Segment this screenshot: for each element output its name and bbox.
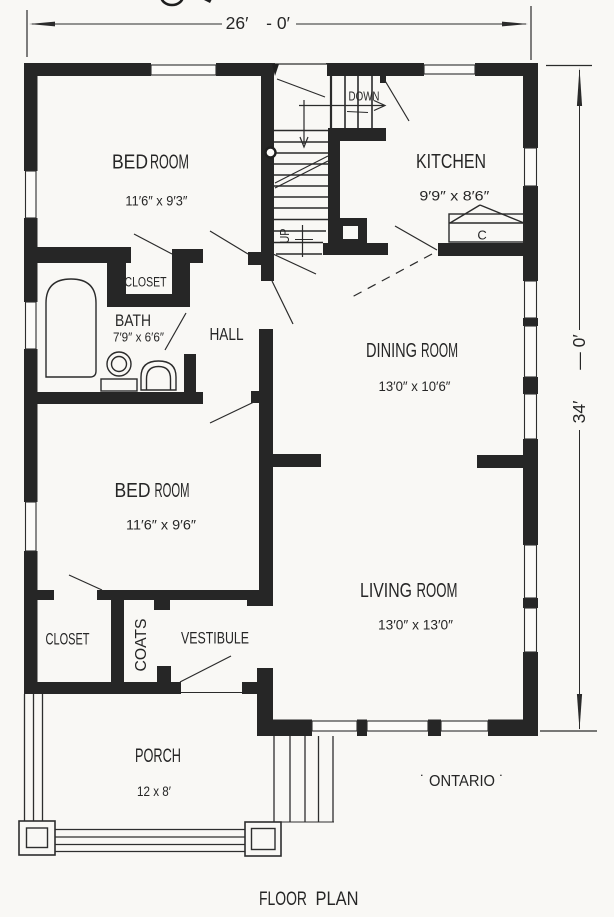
svg-text:11′6″ x 9′6″: 11′6″ x 9′6″	[126, 517, 196, 532]
svg-text:11′6″ x 9′3″: 11′6″ x 9′3″	[125, 193, 187, 208]
svg-text:˙ ONTARIO ˙: ˙ ONTARIO ˙	[420, 773, 504, 790]
svg-text:CLOSET: CLOSET	[125, 274, 167, 290]
svg-text:ROOM: ROOM	[417, 579, 458, 601]
svg-text:C: C	[477, 228, 486, 243]
svg-text:HALL: HALL	[209, 325, 243, 344]
svg-text:34′: 34′	[569, 401, 589, 424]
svg-text:DINING: DINING	[366, 339, 417, 362]
svg-text:PLAN: PLAN	[316, 888, 359, 910]
svg-text:— 0′: — 0′	[569, 334, 589, 369]
svg-text:7′9″ x 6′6″: 7′9″ x 6′6″	[113, 330, 165, 344]
svg-text:12 x 8′: 12 x 8′	[137, 783, 171, 799]
svg-text:BED: BED	[112, 150, 148, 172]
svg-text:ROOM: ROOM	[154, 480, 189, 502]
svg-text:UP: UP	[277, 228, 292, 243]
svg-text:PORCH: PORCH	[135, 746, 181, 767]
svg-text:CLOSET: CLOSET	[46, 630, 90, 649]
svg-text:KITCHEN: KITCHEN	[416, 150, 486, 172]
svg-text:BATH: BATH	[115, 312, 151, 331]
svg-text:DOWN: DOWN	[349, 90, 380, 104]
svg-text:BED: BED	[114, 479, 150, 501]
svg-text:26′: 26′	[226, 13, 249, 33]
svg-text:ROOM: ROOM	[150, 151, 189, 174]
svg-text:13′0″ x 13′0″: 13′0″ x 13′0″	[378, 618, 453, 633]
svg-text:FLOOR: FLOOR	[259, 888, 307, 910]
svg-text:COATS: COATS	[133, 618, 150, 671]
svg-text:- 0′: - 0′	[266, 13, 290, 33]
svg-text:LIVING: LIVING	[360, 579, 412, 601]
svg-text:13′0″ x 10′6″: 13′0″ x 10′6″	[379, 379, 451, 394]
svg-text:ROOM: ROOM	[421, 340, 458, 362]
svg-text:VESTIBULE: VESTIBULE	[181, 630, 249, 648]
svg-text:9′9″ x 8′6″: 9′9″ x 8′6″	[419, 190, 489, 205]
